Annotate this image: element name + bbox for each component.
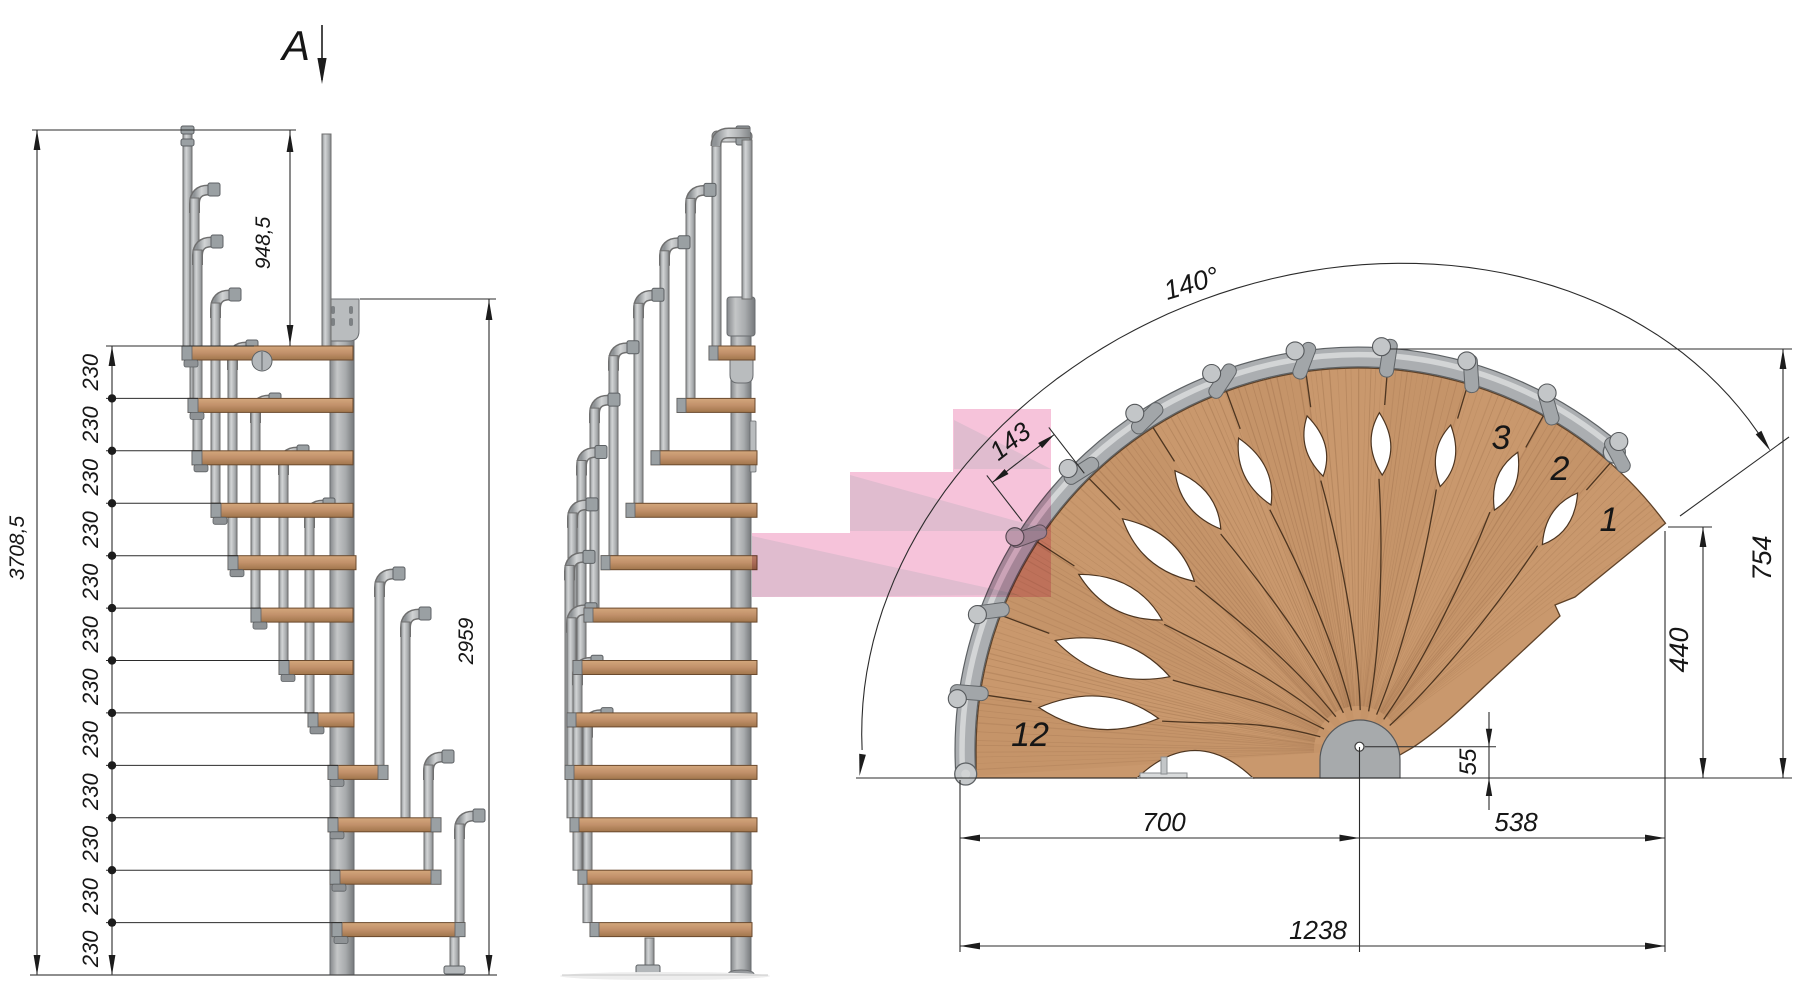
svg-text:55: 55 — [1455, 748, 1482, 775]
svg-text:1238: 1238 — [1289, 915, 1347, 945]
svg-text:230: 230 — [78, 353, 103, 391]
svg-text:230: 230 — [78, 720, 103, 758]
svg-text:538: 538 — [1494, 807, 1538, 837]
svg-text:700: 700 — [1142, 807, 1186, 837]
svg-text:2: 2 — [1550, 450, 1570, 488]
svg-text:2959: 2959 — [455, 617, 478, 665]
svg-text:12: 12 — [1011, 716, 1049, 754]
svg-text:A: A — [279, 22, 310, 69]
svg-text:230: 230 — [78, 772, 103, 810]
svg-text:230: 230 — [78, 825, 103, 863]
svg-text:754: 754 — [1747, 535, 1777, 580]
svg-text:230: 230 — [78, 930, 103, 968]
svg-text:230: 230 — [78, 668, 103, 706]
svg-text:230: 230 — [78, 563, 103, 601]
svg-text:230: 230 — [78, 877, 103, 915]
svg-text:3708,5: 3708,5 — [6, 516, 29, 581]
svg-text:948,5: 948,5 — [252, 216, 275, 269]
svg-text:1: 1 — [1600, 501, 1619, 539]
svg-text:440: 440 — [1664, 627, 1694, 672]
svg-text:230: 230 — [78, 615, 103, 653]
svg-text:3: 3 — [1492, 419, 1511, 457]
svg-text:230: 230 — [78, 510, 103, 548]
svg-text:230: 230 — [78, 405, 103, 443]
svg-text:230: 230 — [78, 458, 103, 496]
